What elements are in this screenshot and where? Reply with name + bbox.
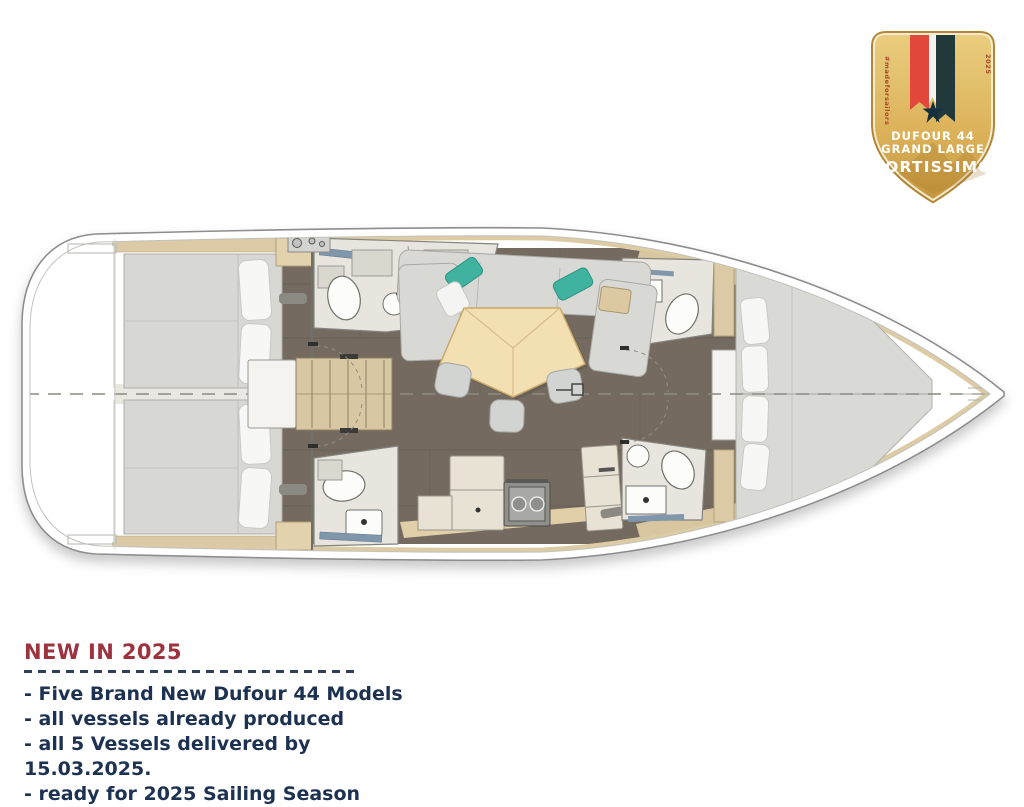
yacht-floorplan xyxy=(0,210,1024,590)
footer-item: - Five Brand New Dufour 44 Models xyxy=(24,682,444,707)
companionway xyxy=(248,354,392,433)
fwd-wardrobe xyxy=(714,262,734,336)
side-tray xyxy=(598,286,631,314)
footer-item: - all vessels already produced xyxy=(24,707,444,732)
fwd-wardrobe xyxy=(714,450,734,522)
fwd-cabin-door xyxy=(712,350,738,440)
badge-name: FORTISSIMO xyxy=(873,158,992,176)
footer-item: - all 5 Vessels delivered by 15.03.2025. xyxy=(24,732,444,782)
dashed-divider xyxy=(24,670,358,673)
footer-heading: NEW IN 2025 xyxy=(24,640,444,664)
hull-window xyxy=(279,293,307,304)
badge-year: 2025 xyxy=(984,54,992,75)
fridge-counter xyxy=(581,445,623,531)
sink xyxy=(627,445,649,467)
badge-hashtag: #madeforsailors xyxy=(883,56,891,125)
footer-item: - ready for 2025 Sailing Season xyxy=(24,782,444,807)
footer-list: - Five Brand New Dufour 44 Models - all … xyxy=(24,682,444,807)
badge-range: GRAND LARGE xyxy=(881,142,985,156)
hull-window xyxy=(279,484,307,495)
badge-model: DUFOUR 44 xyxy=(891,129,975,143)
footer-promo: NEW IN 2025 - Five Brand New Dufour 44 M… xyxy=(24,640,444,807)
model-badge: DUFOUR 44 GRAND LARGE FORTISSIMO #madefo… xyxy=(858,24,1008,216)
head-mid-starboard xyxy=(314,446,398,546)
stove xyxy=(504,479,550,526)
page: DUFOUR 44 GRAND LARGE FORTISSIMO #madefo… xyxy=(0,0,1024,768)
